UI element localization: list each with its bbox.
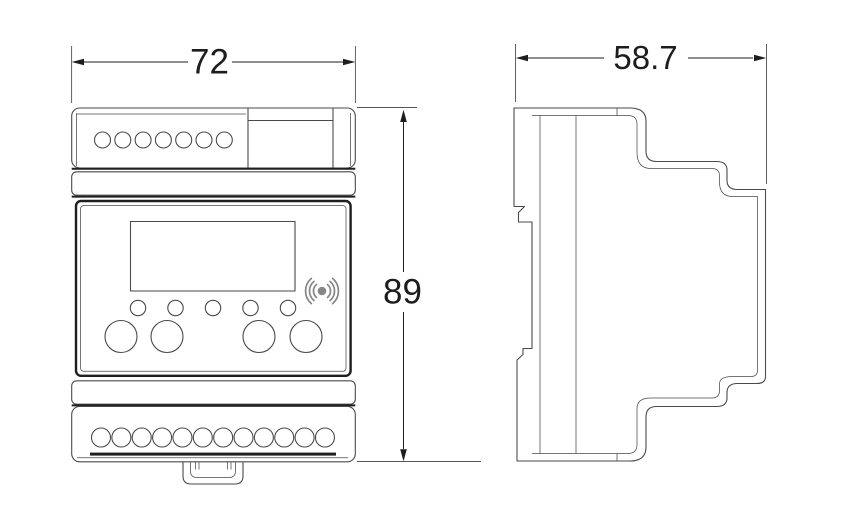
arrow-right-icon (754, 55, 766, 62)
arrow-right-icon (343, 59, 355, 66)
dimension-label-depth: 58.7 (613, 39, 677, 76)
control-button (243, 321, 275, 353)
top-terminal-row (95, 132, 233, 148)
dimension-front-height: 89 (357, 108, 481, 462)
control-button (105, 321, 137, 353)
dimension-label-width: 72 (190, 43, 229, 82)
arrow-up-icon (400, 110, 407, 122)
side-outline (514, 108, 766, 461)
bottom-terminal-row (92, 428, 335, 447)
bottom-edge-shadow (90, 453, 336, 456)
terminal-circle (254, 428, 273, 447)
control-button (151, 321, 183, 353)
top-terminal-block (72, 108, 356, 168)
indicator-button (168, 300, 183, 315)
arrow-left-icon (516, 55, 528, 62)
side-view (514, 108, 766, 461)
indicator-button (130, 300, 145, 315)
indicator-button (243, 300, 258, 315)
terminal-circle (176, 132, 192, 148)
terminal-circle (115, 132, 131, 148)
terminal-circle (275, 428, 294, 447)
side-inner-outline (532, 116, 758, 454)
front-view (72, 108, 356, 484)
terminal-circle (234, 428, 253, 447)
terminal-circle (193, 428, 212, 447)
wireless-signal-icon (306, 278, 339, 303)
terminal-circle (216, 132, 232, 148)
technical-drawing-page: 72 89 58.7 (0, 0, 847, 507)
terminal-circle (214, 428, 233, 447)
arrow-left-icon (72, 59, 84, 66)
terminal-circle (295, 428, 314, 447)
terminal-circle (153, 428, 172, 447)
dimension-front-width: 72 (72, 43, 356, 104)
terminal-circle (315, 428, 334, 447)
dimension-side-depth: 58.7 (516, 39, 767, 184)
terminal-circle (155, 132, 171, 148)
terminal-cover (248, 108, 333, 168)
indicator-button-row (130, 300, 295, 315)
terminal-circle (173, 428, 192, 447)
terminal-circle (196, 132, 212, 148)
indicator-button (280, 300, 295, 315)
dimension-label-height: 89 (383, 273, 422, 312)
terminal-circle (135, 132, 151, 148)
din-clip-tab (183, 462, 243, 484)
side-internal-lines (540, 116, 576, 454)
terminal-circle (112, 428, 131, 447)
arrow-down-icon (400, 449, 407, 461)
control-button-row (105, 321, 322, 353)
lcd-display (131, 222, 296, 292)
control-button (290, 321, 322, 353)
terminal-circle (95, 132, 111, 148)
terminal-circle (132, 428, 151, 447)
upper-band (72, 172, 356, 195)
technical-drawing: 72 89 58.7 (0, 0, 847, 507)
lower-band (72, 381, 356, 404)
terminal-circle (92, 428, 111, 447)
indicator-button (205, 300, 220, 315)
